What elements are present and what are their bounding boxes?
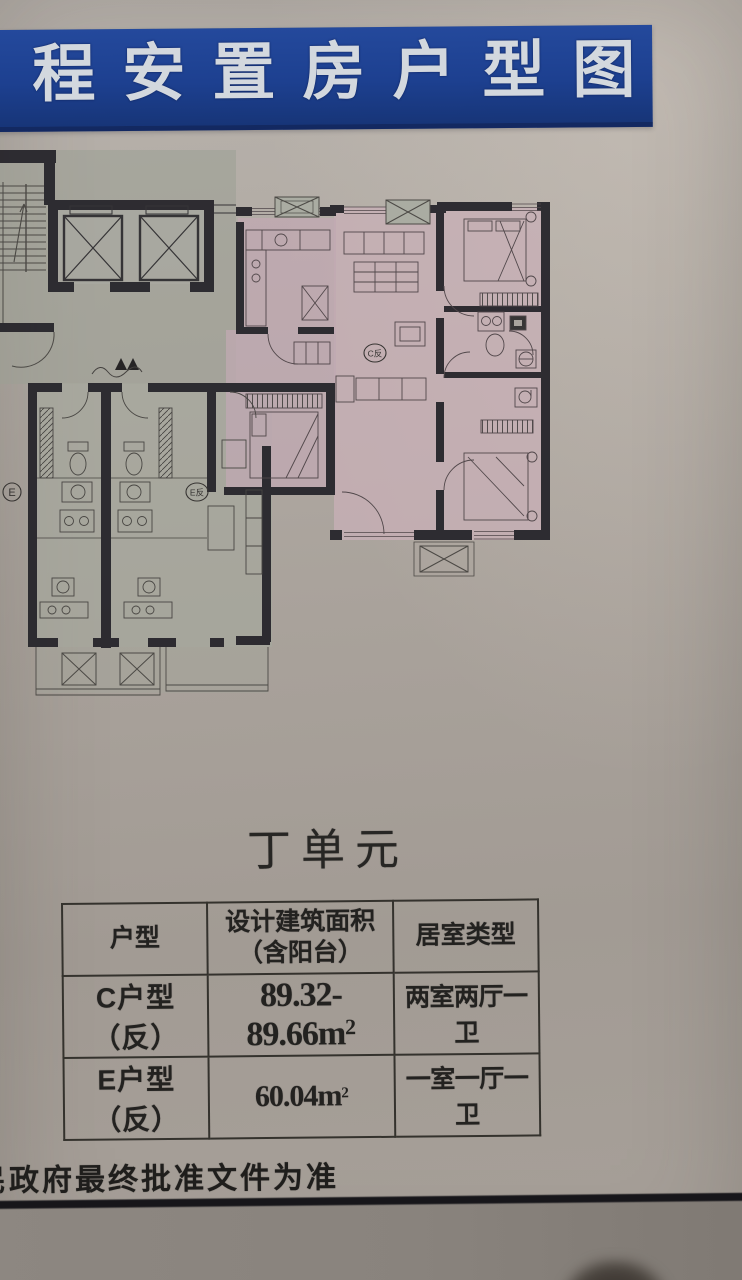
floor-plan-drawing: E E反 C反 bbox=[0, 146, 560, 718]
label-c-unit: C反 bbox=[368, 349, 383, 359]
e-unit-layout: 一室一厅一卫 bbox=[394, 1053, 540, 1136]
banner-title-text: 程安置房户型图 bbox=[32, 35, 663, 110]
floor-fills bbox=[0, 150, 548, 693]
header-unit-type: 户型 bbox=[62, 903, 208, 976]
header-area: 设计建筑面积 （含阳台） bbox=[207, 901, 393, 975]
label-e-unit: E bbox=[8, 487, 15, 499]
e-unit-area: 60.04m2 bbox=[209, 1055, 395, 1139]
banner: 工程安置房户型图 bbox=[0, 25, 653, 132]
table-header-row: 户型 设计建筑面积 （含阳台） 居室类型 bbox=[62, 899, 539, 976]
c-unit-type: C户型（反） bbox=[63, 975, 209, 1058]
label-e-fan-unit: E反 bbox=[190, 488, 204, 498]
table-row-e: E户型（反） 60.04m2 一室一厅一卫 bbox=[63, 1053, 540, 1140]
table-row-c: C户型（反） 89.32-89.66m2 两室两厅一卫 bbox=[63, 971, 540, 1058]
footer-partial-char: 民 bbox=[0, 1156, 9, 1200]
floor-plan: E E反 C反 bbox=[0, 146, 560, 718]
unit-info-table: 户型 设计建筑面积 （含阳台） 居室类型 C户型（反） 89.32-89.66m… bbox=[61, 898, 541, 1141]
banner-title: 工程安置房户型图 bbox=[0, 22, 663, 130]
e-unit-type: E户型（反） bbox=[63, 1057, 209, 1140]
header-room-layout: 居室类型 bbox=[393, 899, 539, 972]
c-unit-layout: 两室两厅一卫 bbox=[393, 971, 539, 1054]
poster-photo: 工程安置房户型图 bbox=[0, 0, 742, 1280]
dark-object bbox=[560, 1258, 670, 1280]
banner-partial-char: 工 bbox=[0, 27, 11, 124]
footer-note-text: 政府最终批准文件为准 bbox=[9, 1161, 339, 1197]
c-unit-area: 89.32-89.66m2 bbox=[208, 973, 394, 1057]
footer-note: 民政府最终批准文件为准 bbox=[0, 1152, 339, 1200]
unit-section-title: 丁单元 bbox=[247, 813, 410, 878]
